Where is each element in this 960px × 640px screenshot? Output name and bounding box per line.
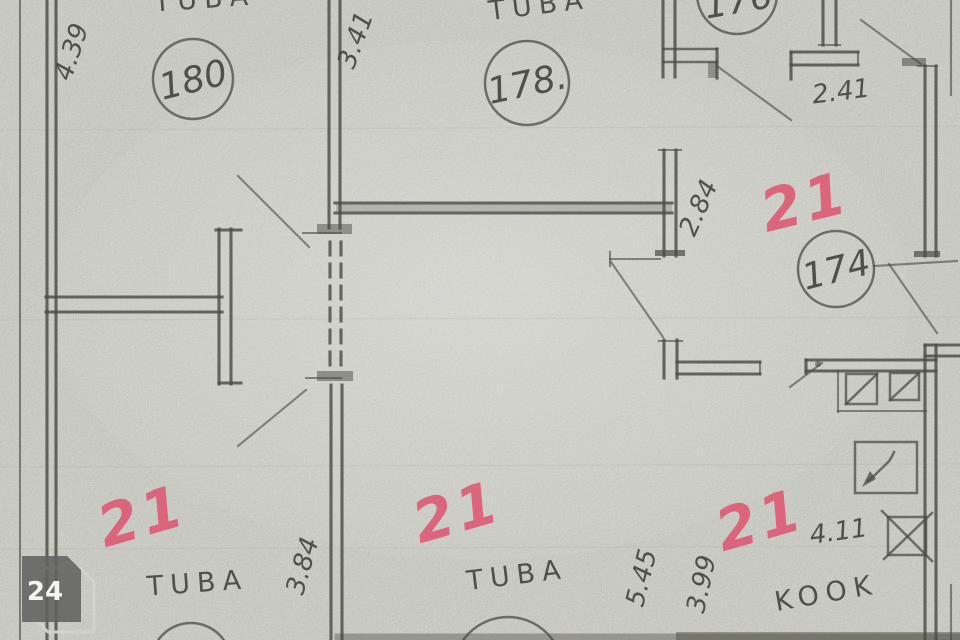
- door-hinge-dot: [815, 361, 821, 367]
- wall-main-fill: [336, 204, 672, 212]
- floorplan-canvas: 180 178. 176 174 TUBA TUBA TUBA TUBA KOO…: [0, 0, 960, 640]
- watermark-number: 24: [27, 577, 63, 607]
- floorplan-screenshot: 180 178. 176 174 TUBA TUBA TUBA TUBA KOO…: [0, 0, 960, 640]
